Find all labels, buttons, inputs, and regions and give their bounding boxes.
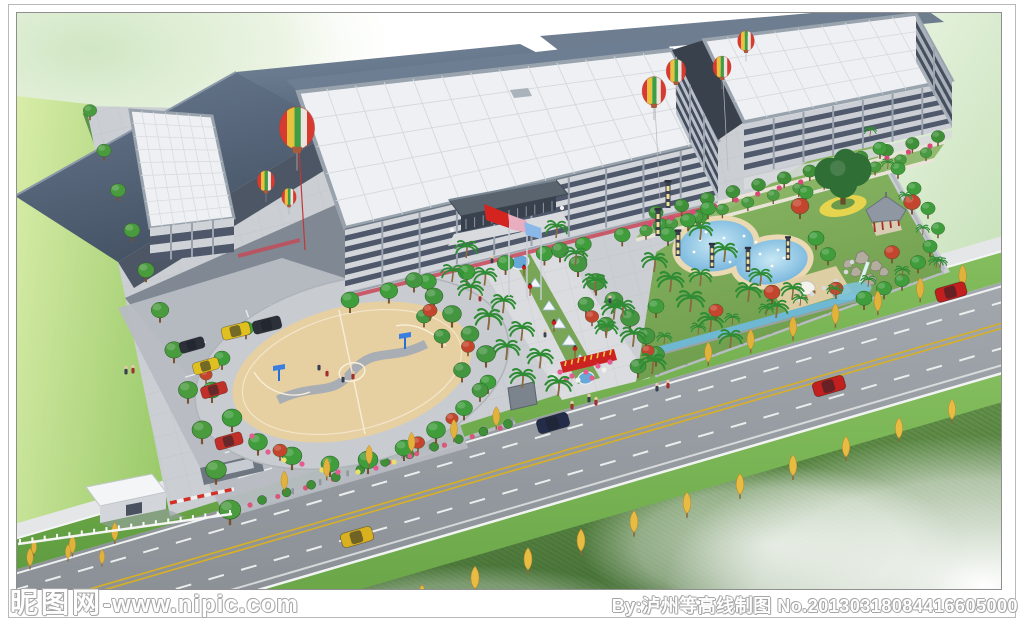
pool-sparkle-dotW — [771, 265, 774, 268]
entry-statues-dotW — [450, 228, 454, 232]
banner-text-marks — [604, 352, 605, 357]
nipic-logo-text: 昵图网 — [10, 587, 103, 618]
pool-sparkle-dotW — [783, 257, 786, 260]
people-red-person — [478, 294, 481, 302]
court-flowers-pink-flwr — [265, 449, 270, 454]
serial-number-text: No.20130318084416605000 — [777, 596, 1018, 616]
garden-lamp-columns-lamp — [675, 229, 682, 256]
aerial-rendering-canvas — [0, 0, 1024, 622]
court-flowers-yellow-flwr — [355, 469, 360, 474]
entry-statues-dotW — [560, 206, 564, 210]
stepping-stones-dotW — [844, 270, 848, 274]
stepping-stones-dotW — [822, 286, 826, 290]
slope-flowers-flwr — [669, 215, 674, 220]
slope-flowers-flwr — [690, 209, 695, 214]
nipic-url-text: -www.nipic.com — [103, 591, 299, 618]
gate-flowers-white-flwr — [575, 377, 580, 382]
slope-flowers-flwr — [755, 191, 760, 196]
fence-flower-row-flwr — [497, 425, 502, 430]
fence-shrub-row-shrub — [479, 427, 488, 436]
banner-text-marks — [591, 355, 592, 360]
pool-sparkle-dotW — [755, 241, 758, 244]
people-red-person — [325, 368, 328, 377]
people-dark-person — [317, 362, 320, 371]
fence-flower-row-flwr — [442, 443, 447, 448]
watermark-left: 昵图网-www.nipic.com — [10, 581, 299, 621]
gate-flowers-pink-flwr — [589, 375, 594, 380]
gate-flowers-pink-flwr — [569, 373, 574, 378]
credit-text: By:泸州等高线制图 — [612, 596, 772, 616]
scene — [0, 0, 1024, 622]
garden-lamp-columns-lamp — [785, 236, 791, 260]
slope-flowers-flwr — [927, 143, 932, 148]
people-red-person — [351, 371, 354, 380]
stepping-stones-dotW — [810, 292, 814, 296]
slope-flowers-flwr — [647, 221, 652, 226]
gate-flowers-pink-flwr — [583, 369, 588, 374]
pool-sparkle-dotW — [693, 251, 696, 254]
court-flowers-pink-flwr — [299, 461, 304, 466]
banner-text-marks — [578, 358, 579, 363]
gate-flowers-pink-flwr — [557, 369, 562, 374]
fence-shrub-row-shrub — [504, 420, 513, 429]
pool-sparkle-dotW — [723, 237, 726, 240]
roadside-trees-lower-tA — [1001, 381, 1008, 405]
slope-flowers-flwr — [734, 197, 739, 202]
pool-sparkle-dotW — [729, 261, 732, 264]
fence-flower-row-flwr — [247, 502, 252, 507]
banner-text-marks — [610, 350, 611, 355]
gate-flowers-pink-flwr — [607, 359, 612, 364]
garden-lamp-columns-lamp — [665, 180, 672, 208]
gate-flowers-white-flwr — [601, 367, 606, 372]
gate-flowers-pink-flwr — [595, 363, 600, 368]
banner-text-marks — [571, 359, 572, 364]
fence-shrub-row-shrub — [430, 442, 439, 451]
people-red-person — [666, 380, 669, 389]
fence-flower-row-flwr — [470, 434, 475, 439]
people-dark-person — [587, 394, 590, 403]
garden-lamp-columns-lamp — [709, 243, 715, 268]
people-dark-person — [124, 366, 127, 375]
people-red-person — [131, 365, 134, 374]
stepping-stones-dotW — [850, 260, 854, 264]
slope-flowers-flwr — [777, 185, 782, 190]
banner-text-marks — [584, 356, 585, 361]
pavilion-posts — [874, 222, 875, 232]
fence-shrub-row-shrub — [258, 496, 267, 505]
court-flowers-pink-flwr — [249, 433, 254, 438]
garden-lamp-columns-lamp — [745, 247, 751, 272]
watermark-right: By:泸州等高线制图 No.20130318084416605000 — [612, 592, 1018, 618]
pool-sparkle-dotW — [743, 235, 746, 238]
banner-text-marks — [597, 353, 598, 358]
fence-shrub-row-shrub — [282, 488, 291, 497]
people-red-person — [570, 401, 573, 410]
people-dark-person — [655, 383, 658, 392]
roadside-trees-lower-tA — [365, 603, 373, 622]
pool-sparkle-dotW — [777, 249, 780, 252]
people-dark-person — [490, 256, 493, 264]
banner-text-marks — [565, 361, 566, 366]
people-red-person — [594, 397, 597, 406]
court-flowers-pink-flwr — [335, 469, 340, 474]
slope-flowers-flwr — [798, 179, 803, 184]
rendered-image-page: 昵图网-www.nipic.com By:泸州等高线制图 No.20130318… — [0, 0, 1024, 622]
slope-flowers-flwr — [906, 149, 911, 154]
garden-lamp-columns-lamp — [655, 208, 662, 236]
court-flowers-yellow-flwr — [281, 457, 286, 462]
fence-flower-row-flwr — [275, 494, 280, 499]
pool-sparkle-dotW — [759, 253, 762, 256]
roadside-trees-upper-tA — [1001, 252, 1009, 277]
court-flowers-pink-flwr — [373, 465, 378, 470]
pool-sparkle-dotW — [705, 231, 708, 234]
court-flowers-yellow-flwr — [391, 459, 396, 464]
people-dark-person — [543, 330, 546, 338]
fence-shrub-row-shrub — [307, 480, 316, 489]
people-dark-person — [341, 374, 344, 383]
people-dark-person — [608, 296, 611, 304]
